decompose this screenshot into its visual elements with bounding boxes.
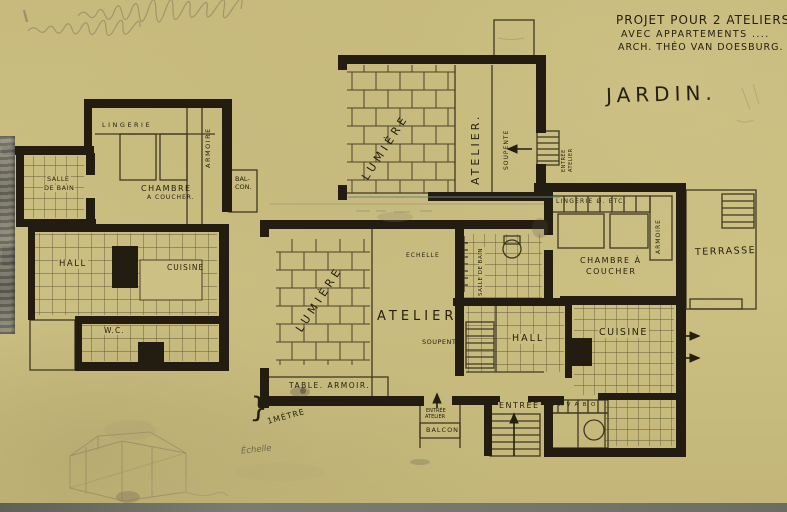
entree-atelier-upper-line2: ATELIER [568,148,575,172]
tape-strip [0,136,15,334]
entree-balcon-label-line2: ATELIER [425,415,445,420]
balcon-lower-label: BALCON [426,427,459,434]
hall-left-label: HALL [58,260,88,269]
hall-right-label: HALL [511,334,545,344]
salle-bain-center-label: SALLE DE BAIN [479,247,485,297]
atelier-lower-label: ATELIER [377,310,457,323]
chambre-left-label-line2: A COUCHER. [147,195,195,201]
chambre-left-label-line1: CHAMBRE [141,185,192,193]
entree-atelier-upper-line1: ENTRÉE [561,148,568,172]
table-armoir-label: TABLE. ARMOIR. [289,382,370,390]
title-line1: PROJET POUR 2 ATELIERS [616,14,787,26]
entree-atelier-upper-label: ENTRÉE ATELIER [561,148,574,172]
balcon-left-label-line1: BAL- [235,176,250,183]
armoire-left-label: ARMOIRE [205,127,212,168]
photo-bottom-edge [0,503,787,512]
balcon-left-label-line2: CON. [235,184,252,191]
terrasse-label: TERRASSE [695,246,756,258]
title-line2: AVEC APPARTEMENTS .... [621,30,770,40]
lavabo-label: LAVABO [551,403,600,409]
drawing-sheet: PROJET POUR 2 ATELIERS AVEC APPARTEMENTS… [0,0,787,512]
cuisine-right-label: CUISINE [598,328,649,338]
cuisine-left-label: CUISINE [167,264,204,272]
chambre-right-label-line1: CHAMBRE À [580,257,642,265]
floor-plan-drawing [0,0,787,512]
salle-bain-left-label-line2: DE BAIN [43,185,75,192]
pencil-sketch [70,432,228,503]
atelier-upper-label: ATELIER. [470,114,481,185]
wc-label: W.C. [103,327,126,335]
salle-bain-left-label-line1: SALLE [46,176,71,183]
pencil-inscription [24,0,242,35]
armoire-right-label: ARMOIRE [656,219,662,254]
lingerie-right-label: LINGERIE Ø. ETC. [556,199,627,205]
lingerie-left-label: LINGERIE [102,122,152,129]
pencil-marks-right [737,84,759,122]
title-line3: ARCH. THÉO VAN DOESBURG. [618,43,784,53]
chambre-right-label-line2: COUCHER [586,268,636,276]
soupente-lower-label: SOUPENTE [422,339,461,346]
soupente-upper-label: SOUPENTE [504,130,510,170]
jardin-label: JARDIN. [606,83,717,106]
entree-right-label: ENTRÉE [498,402,541,410]
echelle-ladder-label: ECHELLE [406,253,440,259]
